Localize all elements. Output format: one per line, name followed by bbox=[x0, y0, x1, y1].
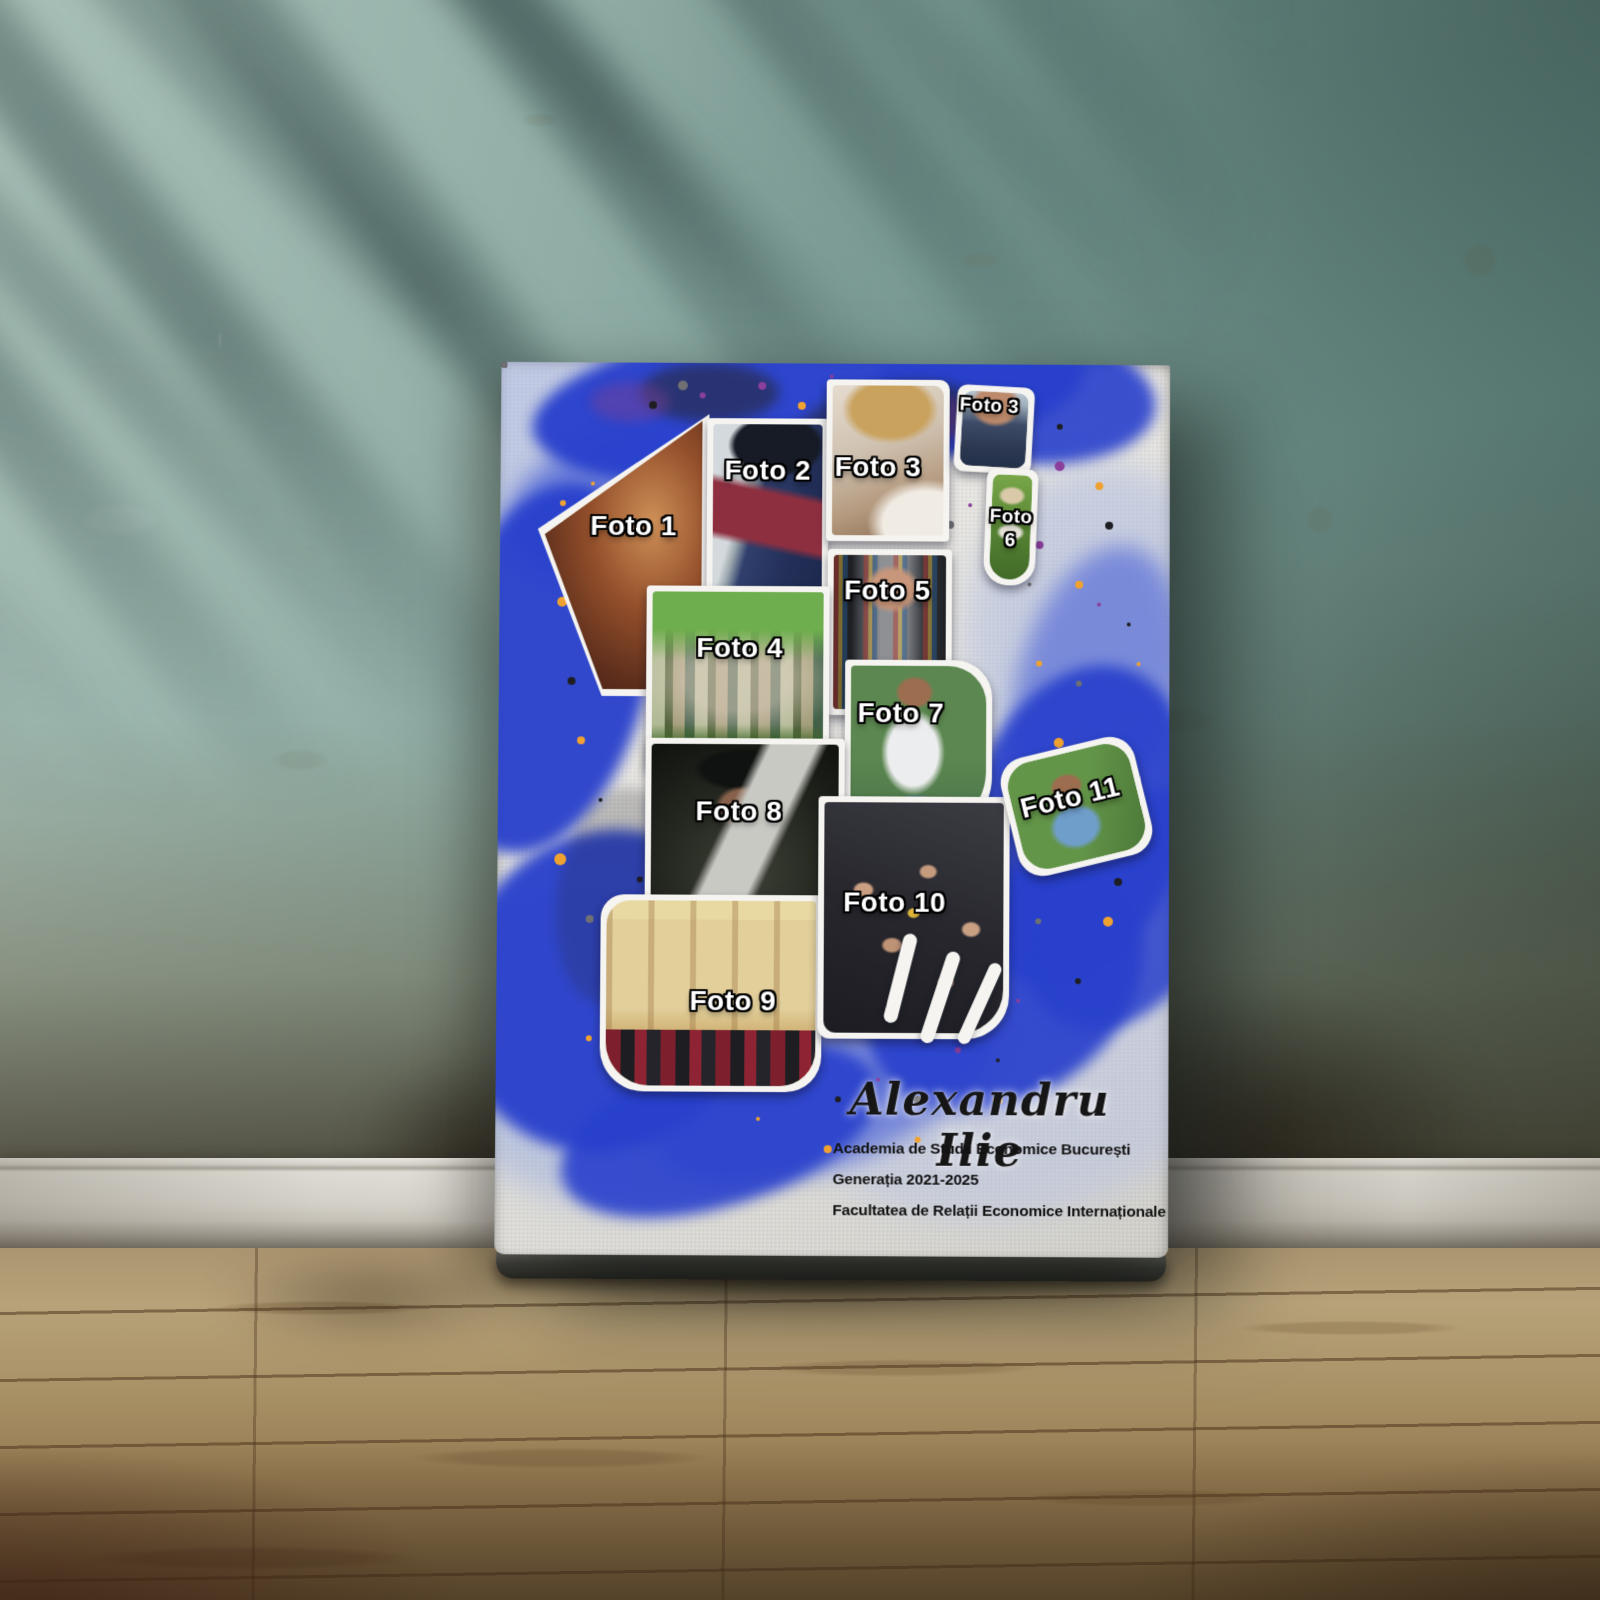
photo-label-foto-2: Foto 2 bbox=[724, 455, 811, 487]
photo-label-foto-6: Foto 6 bbox=[985, 505, 1036, 554]
splatter-dots-gray bbox=[501, 362, 507, 368]
photo-placeholder-foto-4 bbox=[652, 591, 824, 762]
canvas-artwork: Foto 1 Foto 2 Foto 3 Foto 3 Foto 6 Foto … bbox=[494, 362, 1170, 1258]
photo-label-foto-1: Foto 1 bbox=[590, 511, 677, 543]
photo-cell-foto-3-large: Foto 3 bbox=[826, 379, 950, 541]
detail-line-faculty: Facultatea de Relații Economice Internaț… bbox=[832, 1202, 1165, 1222]
room-scene: Foto 1 Foto 2 Foto 3 Foto 3 Foto 6 Foto … bbox=[0, 0, 1600, 1600]
photo-label-foto-9: Foto 9 bbox=[689, 985, 776, 1017]
detail-line-generation: Generația 2021-2025 bbox=[832, 1171, 978, 1190]
paint-smudge bbox=[590, 382, 670, 422]
photo-label-foto-7: Foto 7 bbox=[858, 697, 945, 729]
photo-cell-foto-9: Foto 9 bbox=[599, 894, 822, 1092]
photo-cell-foto-3-small: Foto 3 bbox=[953, 384, 1035, 475]
photo-label-foto-3-large: Foto 3 bbox=[835, 451, 922, 483]
canvas-print: Foto 1 Foto 2 Foto 3 Foto 3 Foto 6 Foto … bbox=[494, 362, 1170, 1284]
photo-cell-foto-6: Foto 6 bbox=[983, 468, 1039, 586]
detail-line-university: Academia de Studii Economice București bbox=[833, 1140, 1131, 1160]
photo-label-foto-4: Foto 4 bbox=[696, 632, 783, 664]
graduate-name: Alexandru Ilie bbox=[810, 1074, 1150, 1177]
photo-label-foto-10: Foto 10 bbox=[843, 887, 946, 919]
photo-label-foto-3-small: Foto 3 bbox=[959, 394, 1020, 419]
photo-label-foto-5: Foto 5 bbox=[844, 575, 931, 607]
photo-label-foto-8: Foto 8 bbox=[695, 795, 782, 827]
